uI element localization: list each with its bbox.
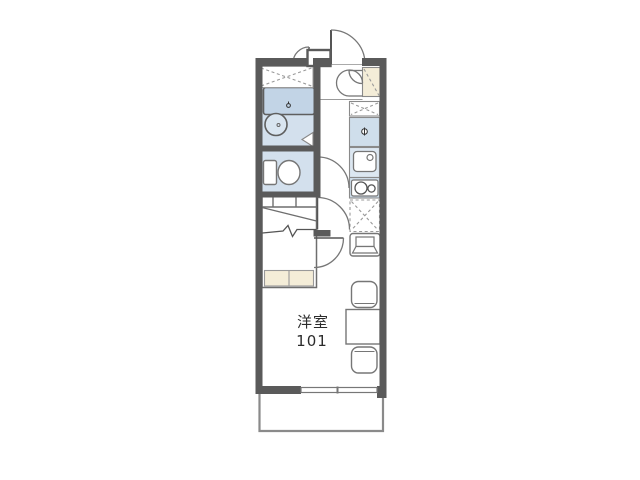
bed-icon <box>262 197 317 288</box>
wall-bottom-right-corner <box>377 386 387 398</box>
room-number-label: 101 <box>296 332 328 350</box>
table-icon <box>346 310 380 345</box>
wall-left <box>256 58 263 394</box>
room-label: 洋室 101 <box>296 313 329 350</box>
floor-plan: 洋室 101 <box>0 0 640 480</box>
entrance-door-arc-icon <box>331 30 365 64</box>
refrigerator-space-icon <box>350 200 380 232</box>
toilet-room <box>263 152 316 192</box>
wall-door-jamb <box>314 230 331 237</box>
wall-top-left <box>256 58 308 66</box>
chair-icon <box>352 347 378 373</box>
wall-bottom-left <box>256 386 302 394</box>
wall-right <box>380 58 387 398</box>
tv-stand-icon <box>350 234 380 257</box>
bathtub-icon <box>264 88 315 115</box>
balcony-icon <box>260 394 384 431</box>
shoe-cabinet-icon <box>337 68 380 97</box>
wall-bath-toilet <box>263 146 321 152</box>
wall-bath-divider <box>314 66 321 198</box>
room-door-arc-icon <box>314 238 344 268</box>
toilet-door-arc-icon <box>318 157 349 188</box>
corridor-door-arc-icon <box>318 198 350 230</box>
unit-bath <box>263 87 315 147</box>
chair-icon <box>352 282 378 308</box>
stove-burners-icon <box>350 178 380 199</box>
floor-plan-page: 洋室 101 <box>0 0 640 480</box>
wall-top-mid <box>313 58 332 66</box>
wall-toilet-bed <box>263 192 321 198</box>
toilet-icon <box>264 161 301 185</box>
window-icon <box>301 387 377 394</box>
kitchen-sink-icon <box>350 148 380 178</box>
storage-shelf-icon <box>260 67 314 88</box>
kitchen-counter <box>350 118 380 147</box>
room-name-label: 洋室 <box>297 313 329 331</box>
bed-storage-steps <box>265 271 314 287</box>
washing-machine-space-icon <box>350 102 380 117</box>
kitchen <box>350 102 380 232</box>
wash-basin-icon <box>265 114 287 136</box>
